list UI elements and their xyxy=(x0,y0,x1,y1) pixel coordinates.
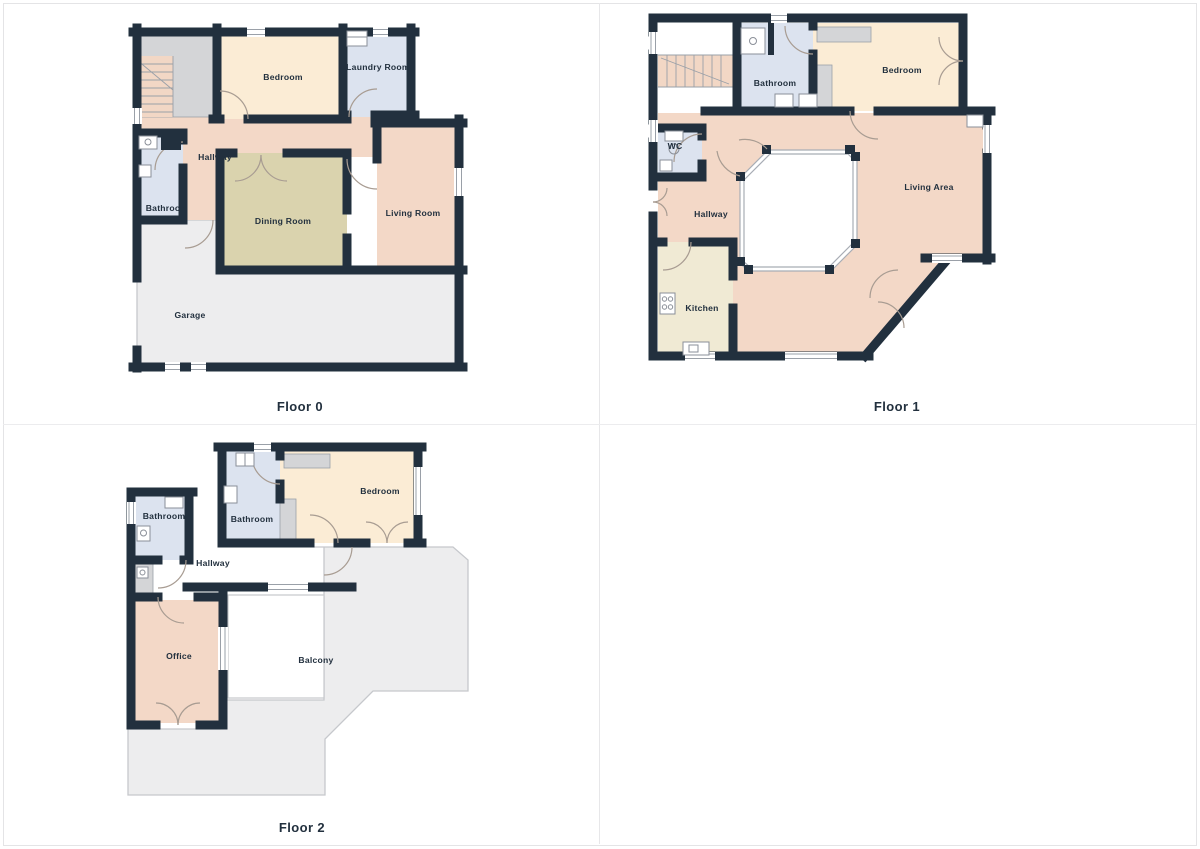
label-bathroom-left: Bathroom xyxy=(143,511,186,521)
floor1-stairs xyxy=(658,55,733,87)
label-garage: Garage xyxy=(174,310,205,320)
closet-f1-b xyxy=(817,65,832,107)
label-dining: Dining Room xyxy=(255,216,311,226)
closet-f1-a xyxy=(817,27,871,42)
room-living-f0 xyxy=(377,119,463,272)
label-office: Office xyxy=(166,651,192,661)
toilet-icon xyxy=(665,131,683,141)
label-bedroom-f1: Bedroom xyxy=(882,65,922,75)
courtyard-void xyxy=(740,150,857,271)
room-office xyxy=(134,600,223,723)
horizontal-divider xyxy=(3,424,1196,425)
label-wc: WC xyxy=(668,141,683,151)
shower-icon xyxy=(741,28,765,54)
label-bathroom-center: Bathroom xyxy=(231,514,274,524)
toilet-icon xyxy=(139,165,151,177)
label-laundry: Laundry Room xyxy=(346,62,410,72)
room-dining xyxy=(220,153,347,270)
label-bedroom-f2: Bedroom xyxy=(360,486,400,496)
floor-1-plan: Bathroom Bedroom WC Hallway Kitchen Livi… xyxy=(645,10,997,410)
sink-icon xyxy=(139,136,157,149)
shower-icon xyxy=(161,136,181,150)
sink-icon xyxy=(224,486,237,503)
label-living-f1: Living Area xyxy=(904,182,953,192)
label-hallway-f2: Hallway xyxy=(196,558,230,568)
room-balcony xyxy=(228,595,324,698)
floor-2-title: Floor 2 xyxy=(222,820,382,835)
floor-0-plan: Bedroom Laundry Room Hallway Bathroom Di… xyxy=(125,20,475,380)
closet-f2-a xyxy=(284,454,330,468)
sink-icon xyxy=(137,526,150,541)
washer-icon xyxy=(347,31,367,46)
label-kitchen: Kitchen xyxy=(685,303,718,313)
label-bedroom-f0: Bedroom xyxy=(263,72,303,82)
sink-icon xyxy=(775,94,793,107)
floor-2-plan: Bathroom Bathroom Bedroom Hallway Office… xyxy=(118,442,488,842)
sink-icon xyxy=(799,94,817,107)
closet-f2-b xyxy=(280,499,296,543)
floor0-stairs xyxy=(137,56,173,117)
label-bathroom-f1: Bathroom xyxy=(754,78,797,88)
toilet-icon xyxy=(165,497,183,508)
label-living-f0: Living Room xyxy=(386,208,441,218)
label-hallway-f0: Hallway xyxy=(198,152,232,162)
floor-1-title: Floor 1 xyxy=(817,399,977,414)
stove-icon xyxy=(660,293,675,314)
floor-0-title: Floor 0 xyxy=(220,399,380,414)
label-balcony: Balcony xyxy=(298,655,333,665)
label-hallway-f1: Hallway xyxy=(694,209,728,219)
kitchen-sink-icon xyxy=(683,342,709,355)
label-bathroom-f0: Bathroom xyxy=(146,203,189,213)
floor-plan-sheet: Bedroom Laundry Room Hallway Bathroom Di… xyxy=(0,0,1200,849)
